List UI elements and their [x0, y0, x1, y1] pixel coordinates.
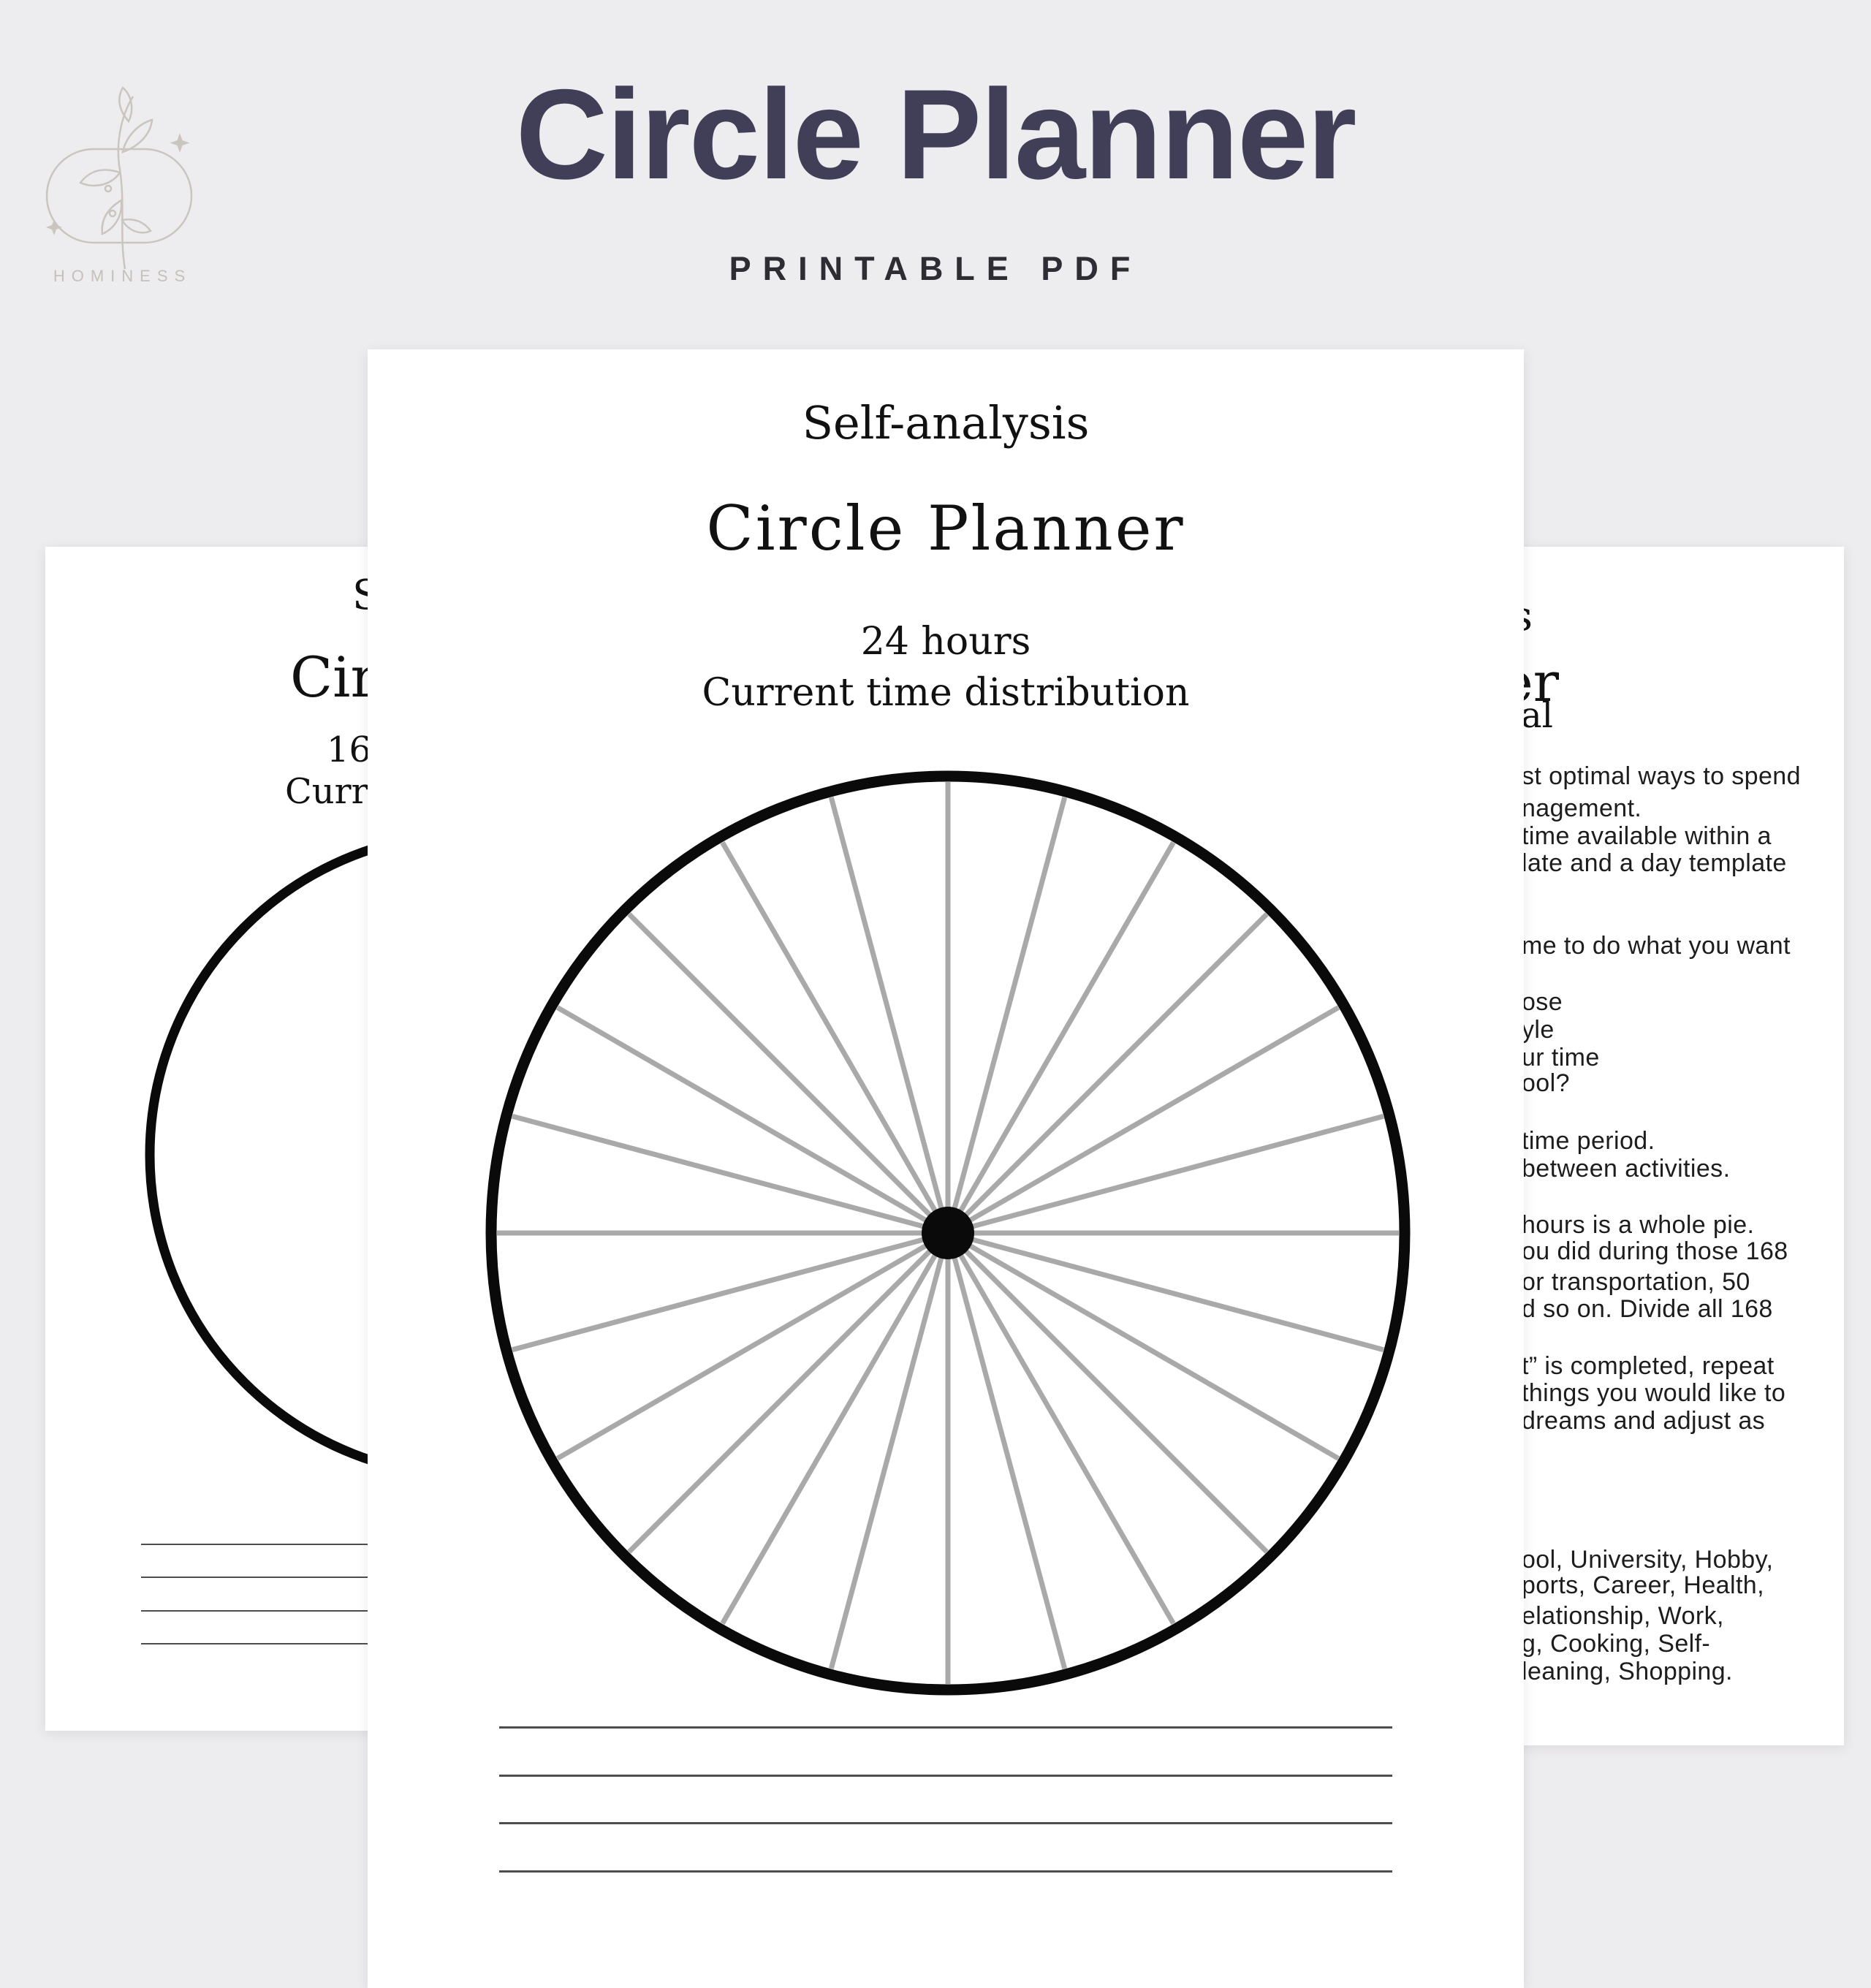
writing-line [499, 1870, 1392, 1873]
wheel-center-dot [922, 1207, 974, 1259]
right-page-text-fragment: ports, Career, Health, [1522, 1571, 1764, 1600]
right-page-text-fragment: elationship, Work, [1522, 1602, 1724, 1631]
poster-subtitle: PRINTABLE PDF [0, 250, 1871, 288]
wheel-spoke [831, 797, 948, 1233]
right-page-text-fragment: things you would like to [1522, 1379, 1785, 1408]
writing-line [499, 1822, 1392, 1824]
wheel-spoke [512, 1233, 948, 1350]
right-page-text-fragment: ool? [1522, 1069, 1570, 1098]
center-page-writing-lines [499, 1726, 1392, 1880]
writing-line [499, 1726, 1392, 1729]
right-page-text-fragment: or transportation, 50 [1522, 1268, 1750, 1297]
center-page-hours-line: 24 hours [368, 620, 1524, 664]
wheel-spoke [831, 1233, 948, 1669]
planner-page-24-hours: Self-analysis Circle Planner 24 hours Cu… [368, 349, 1524, 1988]
right-page-text-fragment: ur time [1522, 1044, 1600, 1072]
right-page-text-fragment: time period. [1522, 1127, 1655, 1156]
right-page-subtitle-fragment: al [1521, 695, 1553, 736]
wheel-spoke [948, 1116, 1384, 1233]
center-page-eyebrow: Self-analysis [368, 396, 1524, 449]
right-page-text-fragment: nagement. [1522, 794, 1642, 823]
product-mockup-image: { "header": { "title": "Circle Planner",… [0, 0, 1871, 1871]
right-page-text-fragment: g, Cooking, Self- [1522, 1630, 1710, 1658]
wheel-spoke [948, 797, 1065, 1233]
right-page-text-fragment: late and a day template [1522, 849, 1787, 878]
right-page-text-fragment: dreams and adjust as [1522, 1407, 1765, 1435]
wheel-spoke [948, 1233, 1065, 1669]
right-page-text-fragment: ool, University, Hobby, [1522, 1546, 1773, 1574]
right-page-text-fragment: st optimal ways to spend [1522, 762, 1801, 791]
right-page-text-fragment: me to do what you want [1522, 932, 1791, 960]
right-page-text-fragment: between activities. [1522, 1155, 1730, 1183]
right-page-text-fragment: leaning, Shopping. [1522, 1658, 1733, 1686]
center-page-title: Circle Planner [368, 493, 1524, 564]
right-page-text-fragment: d so on. Divide all 168 [1522, 1295, 1773, 1324]
wheel-spoke [512, 1116, 948, 1233]
right-page-text-fragment: t” is completed, repeat [1522, 1352, 1775, 1381]
writing-line [499, 1775, 1392, 1777]
24-segment-circle-chart [484, 769, 1412, 1697]
right-page-text-fragment: hours is a whole pie. [1522, 1211, 1754, 1240]
center-page-distribution-line: Current time distribution [368, 671, 1524, 715]
wheel-spoke [948, 1233, 1384, 1350]
poster-title: Circle Planner [0, 61, 1871, 208]
right-page-text-fragment: yle [1522, 1016, 1555, 1044]
right-page-text-fragment: ose [1522, 988, 1563, 1017]
right-page-text-fragment: ou did during those 168 [1522, 1237, 1788, 1266]
right-page-text-fragment: time available within a [1522, 822, 1772, 851]
